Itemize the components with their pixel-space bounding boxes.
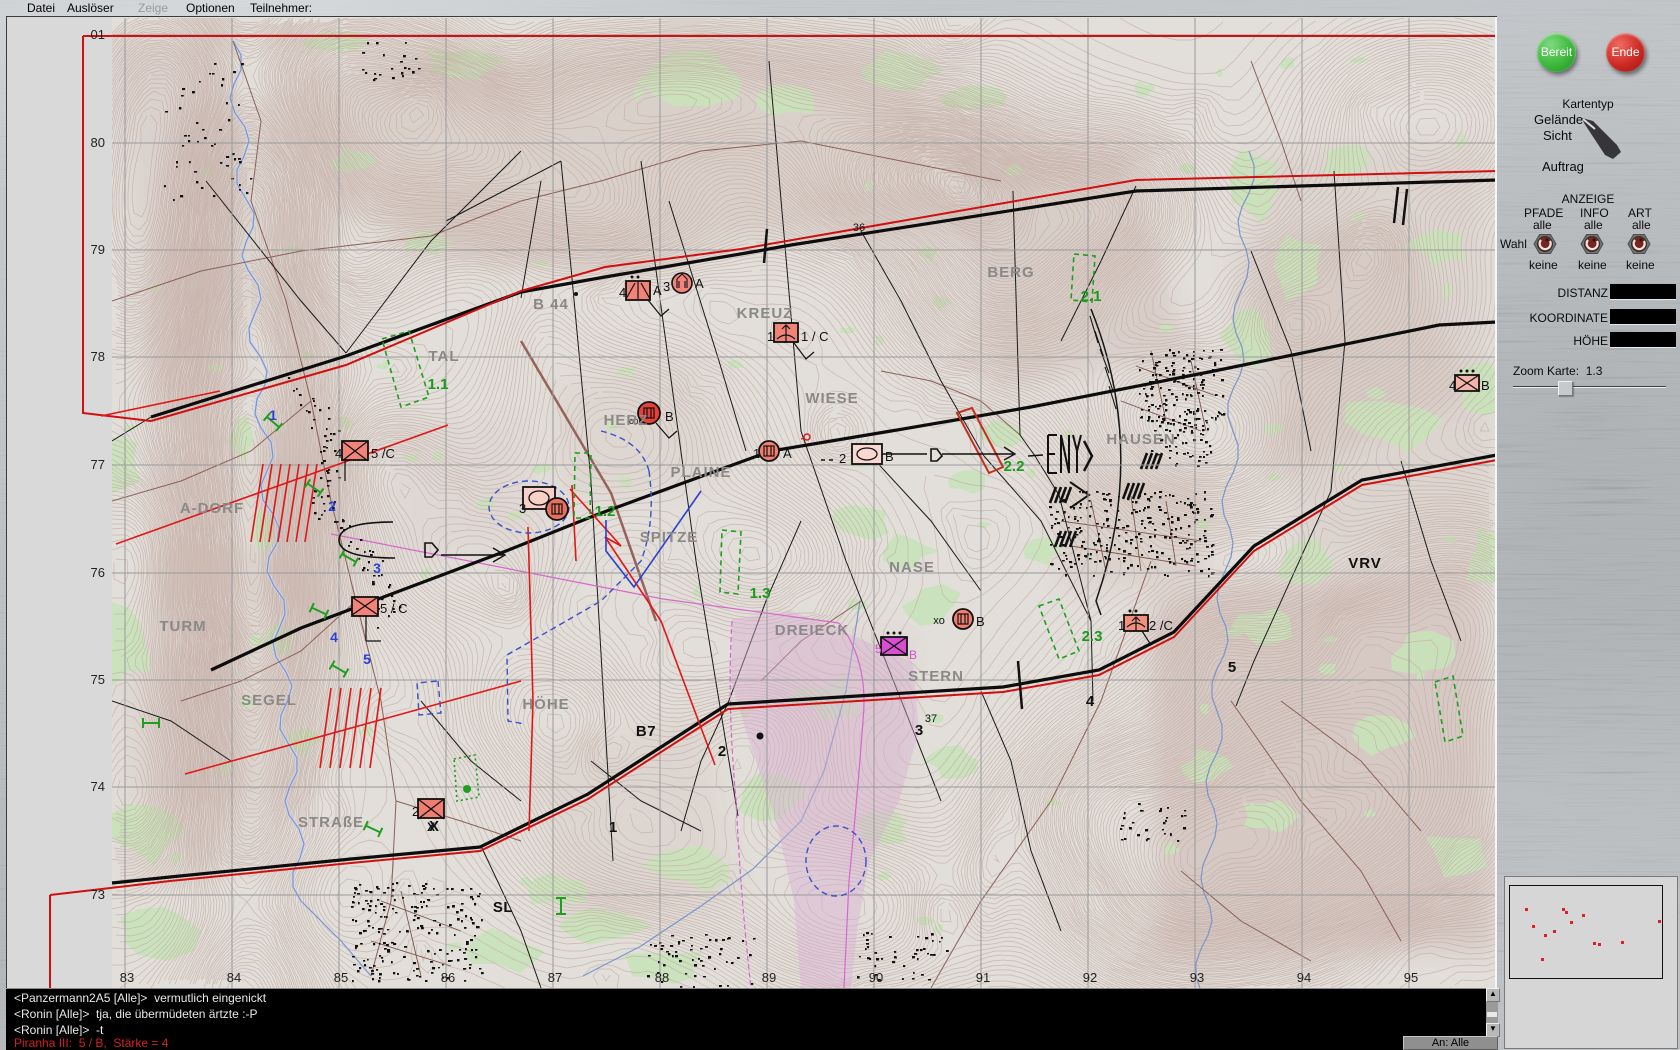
svg-text:2.3: 2.3 [1082, 628, 1103, 645]
svg-text:95: 95 [1404, 970, 1418, 985]
svg-text:NASE: NASE [889, 559, 935, 576]
svg-text:HÖHE: HÖHE [522, 696, 569, 713]
svg-text:2: 2 [328, 498, 336, 514]
svg-text:STERN: STERN [908, 668, 964, 685]
svg-text:TURM: TURM [159, 618, 206, 635]
svg-text:1.3: 1.3 [750, 585, 771, 602]
svg-text:SL: SL [493, 899, 513, 916]
svg-text:A-DORF: A-DORF [180, 500, 244, 517]
svg-text:4: 4 [619, 285, 626, 300]
svg-text:76: 76 [91, 565, 105, 580]
svg-text:85: 85 [334, 970, 348, 985]
svg-text:SEGEL: SEGEL [241, 692, 297, 709]
svg-text:4: 4 [1449, 378, 1456, 393]
svg-text:BERG: BERG [987, 264, 1034, 281]
svg-text:75: 75 [91, 672, 105, 687]
svg-text:80: 80 [91, 135, 105, 150]
svg-text:A: A [783, 446, 792, 461]
svg-text:93: 93 [1190, 970, 1204, 985]
svg-text:87: 87 [548, 970, 562, 985]
svg-text:TAL: TAL [428, 348, 459, 365]
svg-text:5 / C: 5 / C [380, 601, 407, 616]
svg-text:5: 5 [363, 651, 371, 667]
svg-text:2 /C: 2 /C [1149, 618, 1173, 633]
svg-text:HAUSEN: HAUSEN [1106, 431, 1175, 448]
svg-text:94: 94 [1297, 970, 1311, 985]
svg-text:B 44: B 44 [533, 296, 569, 313]
svg-text:3: 3 [663, 279, 670, 294]
svg-text:B7: B7 [636, 723, 656, 740]
svg-text:78: 78 [91, 349, 105, 364]
svg-text:B: B [1481, 378, 1490, 393]
svg-text:3: 3 [373, 560, 381, 576]
svg-text:92: 92 [1083, 970, 1097, 985]
svg-text:B: B [885, 449, 894, 464]
svg-text:4: 4 [330, 629, 338, 645]
svg-text:77: 77 [91, 457, 105, 472]
svg-text:STRAßE: STRAßE [298, 814, 364, 831]
svg-text:73: 73 [91, 887, 105, 902]
svg-text:1.1: 1.1 [428, 376, 449, 393]
svg-text:2: 2 [412, 804, 419, 819]
svg-text:89: 89 [762, 970, 776, 985]
svg-text:3: 3 [519, 501, 526, 516]
svg-text:B: B [976, 614, 985, 629]
svg-text:SPITZE: SPITZE [640, 529, 699, 546]
svg-text:A: A [653, 283, 662, 298]
svg-text:4: 4 [1086, 693, 1095, 710]
svg-text:B: B [909, 648, 917, 662]
svg-text:1.2: 1.2 [595, 503, 616, 520]
svg-text:74: 74 [91, 779, 105, 794]
svg-text:KREUZ: KREUZ [737, 305, 794, 322]
svg-text:91: 91 [976, 970, 990, 985]
svg-text:79: 79 [91, 242, 105, 257]
svg-text:xo: xo [933, 615, 945, 627]
svg-text:37: 37 [925, 713, 937, 725]
svg-text:36: 36 [853, 222, 865, 234]
svg-text:A: A [695, 276, 704, 291]
svg-text:5: 5 [1228, 659, 1236, 676]
svg-text:B: B [665, 409, 674, 424]
svg-text:01: 01 [91, 27, 105, 42]
svg-text:1: 1 [767, 329, 774, 344]
svg-text:2.1: 2.1 [1081, 288, 1102, 305]
svg-text:1: 1 [753, 446, 760, 461]
svg-text:HERZ: HERZ [604, 412, 649, 429]
svg-text:2.2: 2.2 [1004, 458, 1025, 475]
svg-text:88: 88 [655, 970, 669, 985]
svg-text:4: 4 [335, 446, 342, 461]
svg-text:5: 5 [875, 642, 882, 656]
svg-text:DREIECK: DREIECK [775, 622, 850, 639]
svg-text:3: 3 [915, 722, 923, 739]
svg-text:5 /C: 5 /C [371, 446, 395, 461]
svg-text:1: 1 [269, 407, 277, 423]
svg-text:2: 2 [718, 743, 726, 760]
svg-text:1 / C: 1 / C [801, 329, 828, 344]
svg-text:1: 1 [1118, 618, 1125, 633]
svg-text:83: 83 [120, 970, 134, 985]
svg-text:90: 90 [869, 970, 883, 985]
svg-text:84: 84 [227, 970, 241, 985]
svg-text:1: 1 [609, 819, 617, 836]
svg-text:PLAINE: PLAINE [670, 464, 731, 481]
svg-text:2: 2 [839, 451, 846, 466]
svg-text:X: X [429, 818, 439, 835]
svg-text:86: 86 [441, 970, 455, 985]
svg-text:VRV: VRV [1348, 555, 1382, 572]
svg-text:WIESE: WIESE [805, 390, 858, 407]
